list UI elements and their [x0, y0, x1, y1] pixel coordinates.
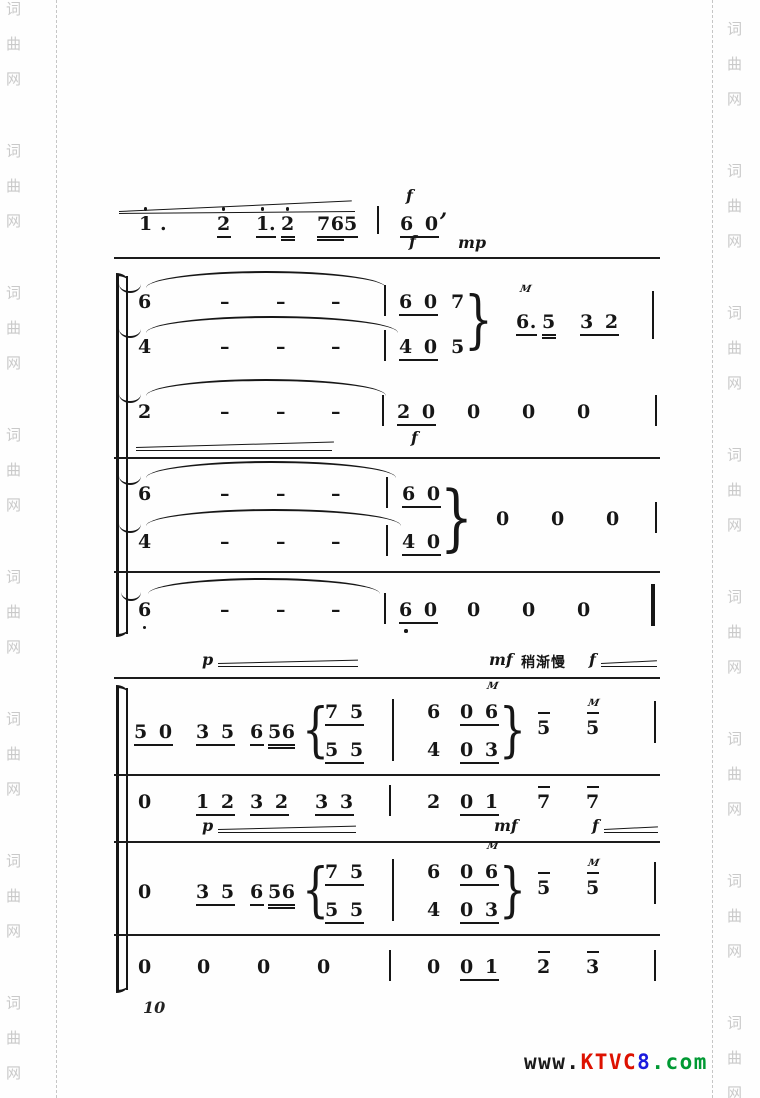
system-separator [114, 934, 660, 936]
note: 1 [139, 213, 153, 235]
note: 76 [317, 213, 344, 238]
note: 5 [537, 877, 551, 899]
barline [392, 859, 394, 921]
note: 4 [427, 899, 441, 921]
barline [651, 584, 655, 626]
barline [384, 330, 386, 361]
brace: } [464, 286, 493, 354]
note: 7 [537, 791, 551, 813]
note: . [269, 213, 276, 238]
dynamic-marking: p [202, 650, 213, 669]
note: 0 [138, 881, 152, 903]
note: 6 [250, 721, 264, 746]
crescendo-line [119, 200, 352, 212]
note: – [220, 291, 230, 313]
note: – [276, 599, 286, 621]
dynamic-marking: f [411, 428, 418, 447]
note: 5 [542, 311, 556, 336]
barline [655, 502, 657, 533]
note: 5 5 [325, 899, 364, 924]
crescendo-line [136, 450, 332, 451]
note: 2 [427, 791, 441, 813]
note: 0 [427, 956, 441, 978]
note: – [220, 336, 230, 358]
crescendo-line [604, 826, 658, 830]
dynamic-marking: f [406, 186, 413, 205]
crescendo-line [218, 660, 358, 664]
note: – [331, 483, 341, 505]
note: 5 [451, 336, 465, 358]
tremolo-mark: M [587, 698, 599, 709]
brace: } [440, 478, 473, 556]
note: 4 0 [402, 531, 441, 556]
dynamic-marking: mp [458, 233, 486, 252]
site-watermark-segment: KTVC [581, 1050, 638, 1074]
note: 5 [586, 717, 600, 739]
tremolo-mark: M [519, 284, 531, 295]
barline [386, 525, 388, 556]
note: 0 3 [460, 899, 499, 924]
note: 0 6 [460, 701, 499, 726]
note: 0 1 [460, 956, 499, 981]
note: 0 [496, 508, 510, 530]
note: 4 0 [399, 336, 438, 361]
note: 6 0 [400, 213, 439, 238]
note: – [276, 291, 286, 313]
tempo-text: 稍渐慢 [521, 652, 566, 672]
note: 5 [344, 213, 358, 238]
note: – [276, 401, 286, 423]
note: 0 1 [460, 791, 499, 816]
note: 1 2 [196, 791, 235, 816]
slur [146, 316, 398, 333]
note: 0 [467, 599, 481, 621]
note: 6 [250, 881, 264, 906]
note: 4 [427, 739, 441, 761]
note: 5 0 [134, 721, 173, 746]
note: 3 5 [196, 721, 235, 746]
note: – [331, 336, 341, 358]
dynamic-marking: p [202, 816, 213, 835]
note: 0 [577, 599, 591, 621]
system-separator [114, 571, 660, 573]
dynamic-marking: f [592, 816, 599, 835]
site-watermark: www.KTVC8.com [524, 1050, 708, 1074]
dynamic-marking: f [589, 650, 596, 669]
breath-mark: , [440, 198, 448, 220]
barline [392, 699, 394, 761]
note: 0 [317, 956, 331, 978]
barline [126, 688, 128, 990]
slur [146, 509, 401, 526]
note: 6 0 [402, 483, 441, 508]
note: 0 [577, 401, 591, 423]
note: 6 [138, 599, 152, 621]
note: 5 [586, 877, 600, 899]
barline [654, 950, 656, 981]
note: 0 [522, 599, 536, 621]
note: 6 [427, 701, 441, 723]
note: 0 [467, 401, 481, 423]
barline [384, 593, 386, 624]
slur [146, 379, 386, 396]
note: 2 [217, 213, 231, 238]
tremolo-mark: M [486, 841, 498, 852]
note: 0 [138, 791, 152, 813]
barline [654, 862, 656, 904]
crescendo-line [218, 832, 356, 833]
note: 1 [256, 213, 270, 238]
note: 3 2 [580, 311, 619, 336]
note: 2 [138, 401, 152, 423]
barline [386, 477, 388, 508]
barline [384, 285, 386, 316]
note: – [220, 401, 230, 423]
note: 6 0 [399, 291, 438, 316]
crescendo-line [604, 832, 658, 833]
note: . [160, 213, 167, 235]
tremolo-mark: M [587, 858, 599, 869]
barline [389, 950, 391, 981]
tremolo-mark: M [486, 681, 498, 692]
crescendo-line [136, 441, 334, 448]
system-bracket [116, 688, 119, 990]
slur [146, 271, 386, 288]
system-separator [114, 841, 660, 843]
note: 4 [138, 531, 152, 553]
note: – [331, 599, 341, 621]
crescendo-line [218, 666, 358, 667]
octave-dot [404, 629, 408, 633]
note: 0 [197, 956, 211, 978]
note: – [220, 483, 230, 505]
slur [148, 578, 380, 594]
note: 56 [268, 721, 295, 746]
brace: } [499, 858, 526, 922]
note: 2 [537, 956, 551, 978]
note: 7 5 [325, 701, 364, 726]
note: 56 [268, 881, 295, 906]
note: – [331, 401, 341, 423]
barline [389, 785, 391, 816]
note: 0 [257, 956, 271, 978]
note: 5 5 [325, 739, 364, 764]
brace: } [499, 698, 526, 762]
note: 4 [138, 336, 152, 358]
note: 0 [138, 956, 152, 978]
page-number: 10 [143, 998, 165, 1017]
score-layer: 1.21.2765f6 0,fmp6–––6 074–––4 05}M6.53 … [0, 0, 760, 1098]
site-watermark-segment: 8 [637, 1050, 651, 1074]
system-separator [114, 257, 660, 259]
slur [146, 461, 396, 478]
note: 6 0 [399, 599, 438, 624]
note: – [220, 599, 230, 621]
barline [377, 206, 379, 234]
dynamic-marking: mf [494, 816, 518, 835]
note: 2 [281, 213, 295, 238]
system-separator [114, 677, 660, 679]
note: 6 [427, 861, 441, 883]
note: 0 [522, 401, 536, 423]
note: 2 0 [397, 401, 436, 426]
barline [655, 395, 657, 426]
note: – [276, 531, 286, 553]
barline [652, 291, 654, 339]
note: 7 5 [325, 861, 364, 886]
note: 3 3 [315, 791, 354, 816]
note: 0 6 [460, 861, 499, 886]
dynamic-marking: f [409, 232, 416, 251]
crescendo-line [218, 826, 356, 830]
note: – [331, 531, 341, 553]
note: 6 [138, 291, 152, 313]
note: 7 [586, 791, 600, 813]
note: – [276, 483, 286, 505]
note: 0 3 [460, 739, 499, 764]
barline [382, 395, 384, 426]
site-watermark-segment: .com [651, 1050, 708, 1074]
site-watermark-segment: www. [524, 1050, 581, 1074]
sheet-music-page: 词曲网词曲网词曲网词曲网词曲网词曲网词曲网词曲网 词曲网词曲网词曲网词曲网词曲网… [0, 0, 760, 1098]
note: – [331, 291, 341, 313]
crescendo-line [601, 660, 657, 664]
crescendo-line [601, 666, 657, 667]
note: – [276, 336, 286, 358]
note: 3 [586, 956, 600, 978]
note: 3 5 [196, 881, 235, 906]
system-separator [114, 457, 660, 459]
note: 6. [516, 311, 537, 336]
note: 3 2 [250, 791, 289, 816]
note: 0 [606, 508, 620, 530]
system-separator [114, 774, 660, 776]
note: 6 [138, 483, 152, 505]
note: 7 [451, 291, 465, 313]
note: – [220, 531, 230, 553]
note: 5 [537, 717, 551, 739]
note: 0 [551, 508, 565, 530]
dynamic-marking: mf [489, 650, 513, 669]
barline [654, 701, 656, 743]
